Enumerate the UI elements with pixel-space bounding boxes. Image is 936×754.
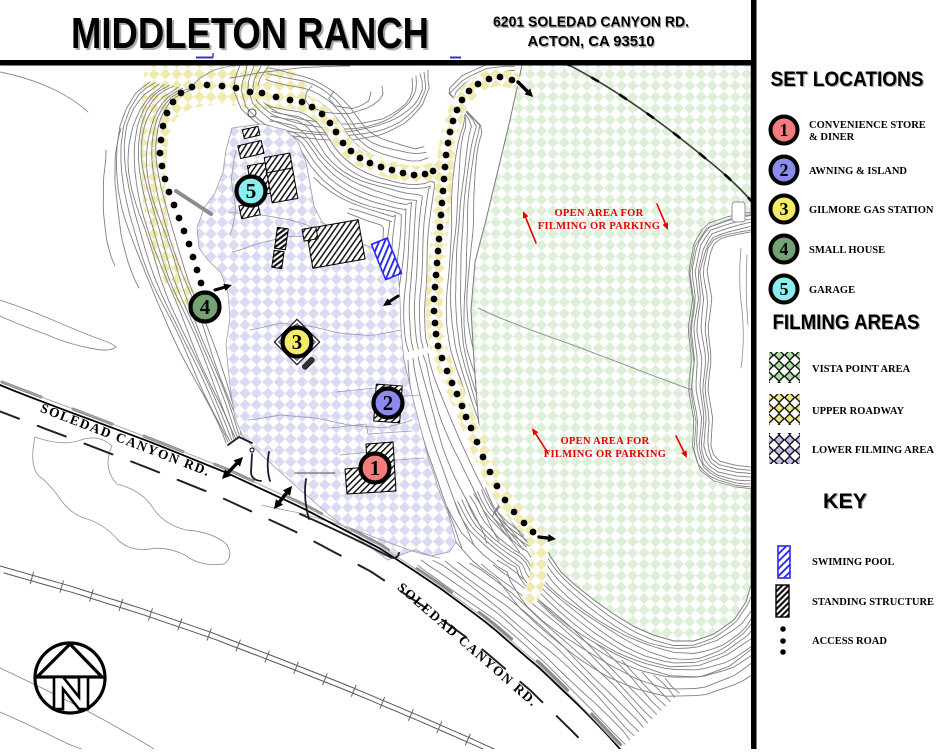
svg-text:ACTON, CA 93510: ACTON, CA 93510 [528,33,655,50]
svg-text:GILMORE GAS STATION: GILMORE GAS STATION [809,205,934,216]
svg-text:OPEN AREA FOR: OPEN AREA FOR [554,208,643,219]
svg-text:3: 3 [780,199,789,219]
svg-text:OPEN AREA FOR: OPEN AREA FOR [560,436,649,447]
svg-text:1: 1 [780,120,789,140]
svg-text:UPPER ROADWAY: UPPER ROADWAY [812,406,904,417]
svg-text:KEY: KEY [823,489,867,513]
svg-text:MIDDLETON RANCH: MIDDLETON RANCH [71,9,429,58]
svg-text:FILMING OR PARKING: FILMING OR PARKING [544,449,666,460]
svg-text:6201 SOLEDAD CANYON RD.: 6201 SOLEDAD CANYON RD. [493,14,689,31]
svg-text:4: 4 [780,239,789,259]
svg-text:SMALL HOUSE: SMALL HOUSE [809,245,885,256]
svg-text:2: 2 [383,391,394,415]
svg-text:ACCESS ROAD: ACCESS ROAD [812,636,887,647]
svg-text:VISTA POINT AREA: VISTA POINT AREA [812,364,911,375]
svg-text:STANDING STRUCTURE: STANDING STRUCTURE [812,597,934,608]
svg-text:LOWER FILMING AREA: LOWER FILMING AREA [812,445,934,456]
svg-text:5: 5 [246,179,257,203]
svg-text:FILMING AREAS: FILMING AREAS [773,310,920,334]
svg-text:GARAGE: GARAGE [809,285,855,296]
svg-text:3: 3 [292,330,303,354]
svg-text:1: 1 [370,456,381,480]
svg-text:& DINER: & DINER [809,132,855,143]
svg-text:CONVENIENCE STORE: CONVENIENCE STORE [809,120,926,131]
svg-text:2: 2 [780,160,789,180]
svg-text:SET LOCATIONS: SET LOCATIONS [771,67,924,91]
svg-text:SWIMING POOL: SWIMING POOL [812,557,895,568]
svg-text:FILMING OR PARKING: FILMING OR PARKING [538,221,660,232]
svg-text:5: 5 [780,279,789,299]
svg-text:AWNING & ISLAND: AWNING & ISLAND [809,166,907,177]
svg-text:4: 4 [200,295,211,319]
